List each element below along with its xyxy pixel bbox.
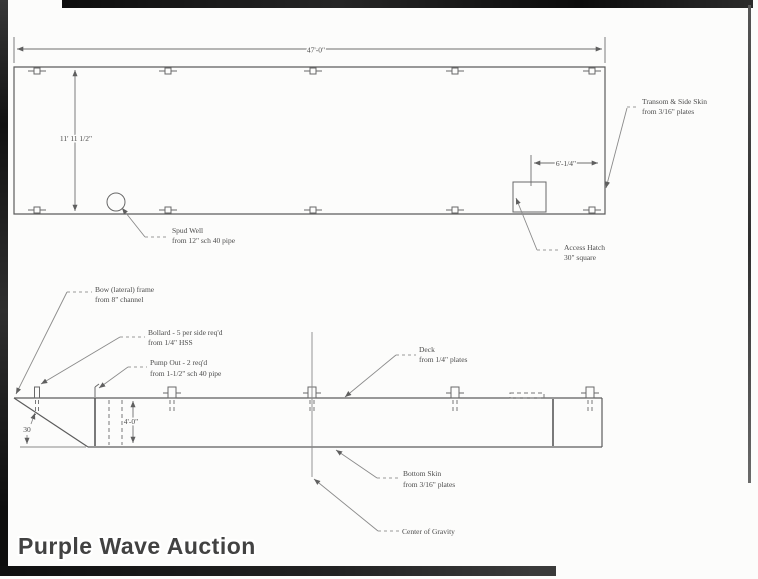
depth-dimension-text: 4'-0" [124, 417, 138, 426]
bow-frame-label-1: Bow (lateral) frame [95, 285, 155, 294]
watermark-text: Purple Wave Auction [18, 533, 256, 560]
access-hatch-label-1: Access Hatch [564, 243, 605, 252]
blueprint-drawing: 47'-0" 11' 11 1/2" Spud Well [0, 0, 758, 579]
side-view: 30 4'-0" [14, 285, 602, 536]
plan-view: 47'-0" 11' 11 1/2" Spud Well [14, 37, 707, 262]
pump-out-fitting [95, 384, 99, 397]
side-bollard-symbols [163, 387, 599, 413]
bow-frame-callout: Bow (lateral) frame from 8" channel [16, 285, 155, 394]
access-hatch: 6'-1/4" Access Hatch 30" square [513, 155, 605, 262]
spud-well-hidden-lines [109, 400, 122, 445]
bow-rake-line [14, 398, 88, 447]
spud-well-label-1: Spud Well [172, 226, 203, 235]
deck-hatch-hidden-outline [510, 393, 544, 398]
bow-bollard-symbol [35, 387, 40, 415]
pump-out-label-2: from 1-1/2" sch 40 pipe [150, 369, 222, 378]
width-dimension: 11' 11 1/2" [60, 70, 92, 211]
deck-label-1: Deck [419, 345, 435, 354]
spud-well-label-2: from 12" sch 40 pipe [172, 236, 236, 245]
bow-angle-dimension: 30 [20, 413, 86, 447]
deck-callout: Deck from 1/4" plates [345, 345, 468, 397]
deck-label-2: from 1/4" plates [419, 355, 468, 364]
plan-hull-outline [14, 67, 605, 214]
bow-angle-text: 30 [23, 425, 31, 434]
pump-out-label-1: Pump Out - 2 req'd [150, 358, 207, 367]
scan-border-right [748, 5, 751, 483]
bollard-label-2: from 1/4" HSS [148, 338, 193, 347]
spud-well: Spud Well from 12" sch 40 pipe [107, 193, 236, 245]
length-dimension-text: 47'-0" [307, 46, 325, 55]
plan-bollard-symbols [28, 68, 601, 213]
access-hatch-label-2: 30" square [564, 253, 597, 262]
scanned-barge-drawing: 47'-0" 11' 11 1/2" Spud Well [0, 0, 758, 579]
transom-callout: Transom & Side Skin from 3/16" plates [606, 97, 707, 188]
length-dimension: 47'-0" [14, 37, 605, 63]
bow-frame-label-2: from 8" channel [95, 295, 143, 304]
transom-label-2: from 3/16" plates [642, 107, 694, 116]
bottom-skin-label-1: Bottom Skin [403, 469, 441, 478]
scan-border-top [62, 0, 753, 8]
center-of-gravity-label: Center of Gravity [402, 527, 455, 536]
bottom-skin-callout: Bottom Skin from 3/16" plates [336, 450, 455, 489]
hatch-offset-dimension-text: 6'-1/4" [556, 159, 576, 168]
pump-out-callout: Pump Out - 2 req'd from 1-1/2" sch 40 pi… [99, 358, 222, 388]
transom-label-1: Transom & Side Skin [642, 97, 707, 106]
access-hatch-square [513, 182, 546, 212]
width-dimension-text: 11' 11 1/2" [60, 134, 92, 143]
bottom-skin-label-2: from 3/16" plates [403, 480, 455, 489]
bollard-label-1: Bollard - 5 per side req'd [148, 328, 223, 337]
scan-border-left [0, 0, 8, 566]
scan-border-bottom [0, 566, 556, 576]
depth-dimension: 4'-0" [124, 401, 138, 443]
